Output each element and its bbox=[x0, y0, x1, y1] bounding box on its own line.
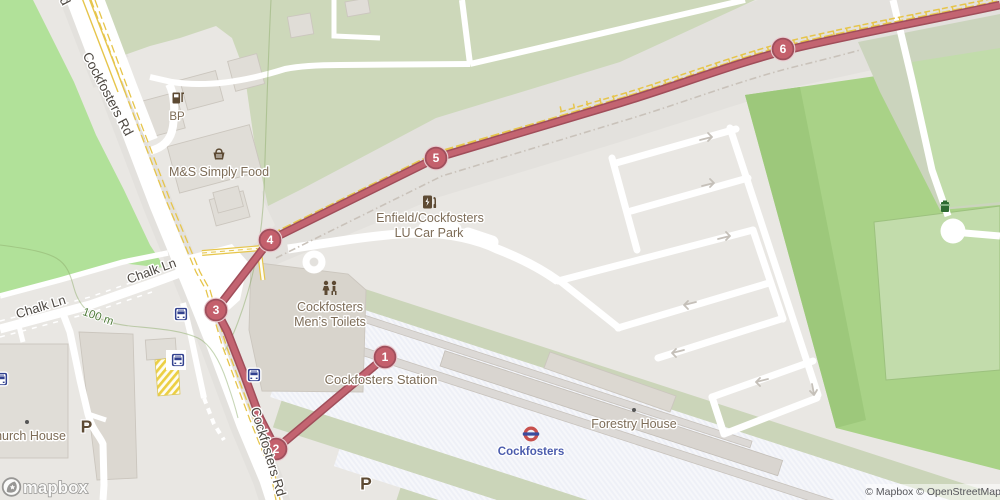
svg-text:Church House: Church House bbox=[0, 429, 66, 443]
svg-text:BP: BP bbox=[169, 111, 185, 123]
svg-text:Cockfosters Station: Cockfosters Station bbox=[325, 372, 438, 387]
svg-text:6: 6 bbox=[780, 42, 787, 56]
svg-text:LU Car Park: LU Car Park bbox=[395, 226, 465, 240]
svg-text:Forestry House: Forestry House bbox=[591, 417, 676, 431]
svg-text:4: 4 bbox=[267, 233, 274, 247]
svg-text:M&S Simply Food: M&S Simply Food bbox=[169, 165, 269, 179]
svg-text:3: 3 bbox=[213, 303, 220, 317]
svg-text:Men’s Toilets: Men’s Toilets bbox=[294, 315, 366, 329]
svg-text:mapbox: mapbox bbox=[23, 479, 89, 497]
svg-text:1: 1 bbox=[382, 350, 389, 364]
svg-text:P: P bbox=[81, 417, 93, 437]
svg-text:Cockfosters: Cockfosters bbox=[297, 300, 363, 314]
svg-text:Enfield/Cockfosters: Enfield/Cockfosters bbox=[376, 211, 484, 225]
svg-text:Cockfosters: Cockfosters bbox=[498, 446, 564, 458]
svg-text:5: 5 bbox=[433, 151, 440, 165]
svg-text:P: P bbox=[360, 474, 372, 494]
svg-text:© Mapbox © OpenStreetMap: © Mapbox © OpenStreetMap bbox=[865, 486, 1000, 498]
